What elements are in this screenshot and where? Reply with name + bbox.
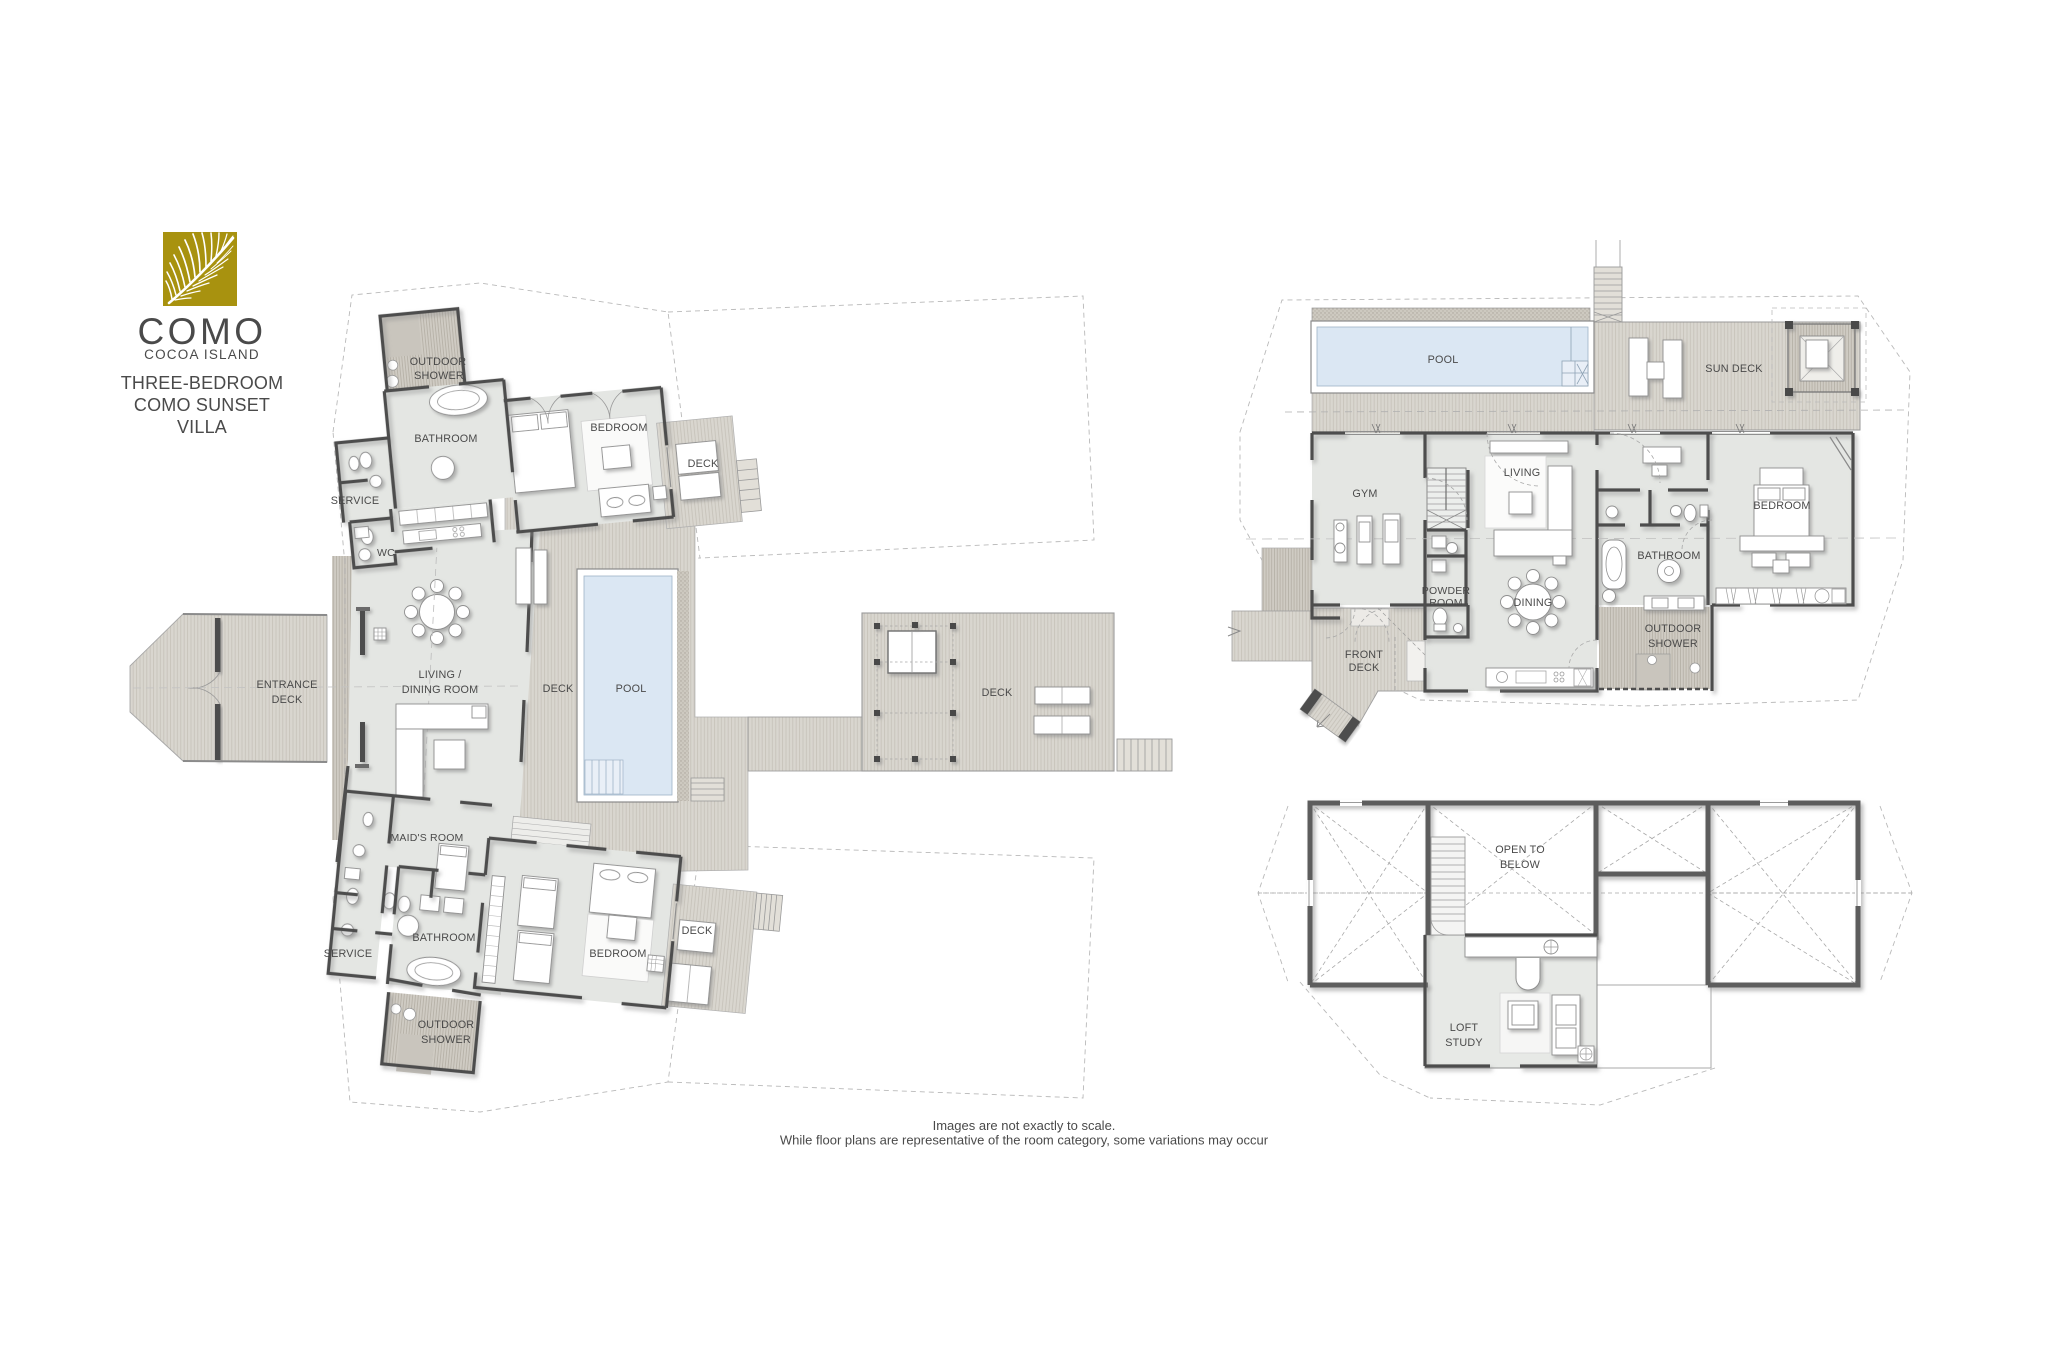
svg-text:DECK: DECK	[982, 687, 1013, 699]
svg-text:MAID'S ROOM: MAID'S ROOM	[390, 832, 463, 844]
svg-text:DINING ROOM: DINING ROOM	[402, 684, 479, 696]
svg-text:DECK: DECK	[272, 694, 303, 706]
svg-text:OUTDOOR: OUTDOOR	[1645, 623, 1702, 635]
svg-text:Images are not exactly to scal: Images are not exactly to scale.	[933, 1118, 1116, 1133]
svg-text:BATHROOM: BATHROOM	[412, 932, 475, 944]
svg-text:BATHROOM: BATHROOM	[1637, 550, 1700, 562]
svg-text:SHOWER: SHOWER	[421, 1034, 471, 1046]
svg-text:ROOM: ROOM	[1429, 597, 1462, 609]
svg-text:SHOWER: SHOWER	[1648, 638, 1698, 650]
svg-text:SERVICE: SERVICE	[331, 495, 380, 507]
svg-text:DINING: DINING	[1514, 597, 1553, 609]
svg-text:ENTRANCE: ENTRANCE	[257, 679, 318, 691]
svg-text:DECK: DECK	[543, 683, 574, 695]
svg-text:COMO SUNSET: COMO SUNSET	[134, 395, 270, 415]
svg-text:DECK: DECK	[682, 925, 713, 937]
svg-text:POOL: POOL	[1428, 354, 1459, 366]
svg-text:LOFT: LOFT	[1450, 1022, 1479, 1034]
svg-text:FRONT: FRONT	[1345, 649, 1383, 661]
svg-text:COMO: COMO	[137, 311, 266, 352]
svg-text:BEDROOM: BEDROOM	[1753, 500, 1810, 512]
svg-text:DECK: DECK	[1349, 662, 1380, 674]
svg-text:OUTDOOR: OUTDOOR	[418, 1019, 475, 1031]
svg-text:COCOA ISLAND: COCOA ISLAND	[144, 347, 260, 362]
svg-text:SERVICE: SERVICE	[324, 948, 373, 960]
svg-text:THREE-BEDROOM: THREE-BEDROOM	[121, 373, 284, 393]
svg-text:LIVING: LIVING	[1504, 467, 1541, 479]
svg-text:POOL: POOL	[616, 683, 647, 695]
svg-text:VILLA: VILLA	[177, 417, 227, 437]
svg-text:OUTDOOR: OUTDOOR	[410, 356, 467, 368]
svg-text:BEDROOM: BEDROOM	[589, 948, 646, 960]
svg-text:SUN DECK: SUN DECK	[1705, 363, 1763, 375]
svg-text:While floor plans are represen: While floor plans are representative of …	[780, 1133, 1269, 1148]
svg-text:POWDER: POWDER	[1422, 585, 1471, 597]
svg-text:BEDROOM: BEDROOM	[590, 422, 647, 434]
svg-text:BELOW: BELOW	[1500, 859, 1541, 871]
svg-text:WC: WC	[377, 547, 395, 559]
svg-text:LIVING /: LIVING /	[418, 669, 461, 681]
svg-text:DECK: DECK	[688, 458, 719, 470]
svg-text:STUDY: STUDY	[1445, 1037, 1483, 1049]
svg-text:BATHROOM: BATHROOM	[414, 433, 477, 445]
svg-text:OPEN TO: OPEN TO	[1495, 844, 1545, 856]
svg-text:SHOWER: SHOWER	[414, 370, 464, 382]
svg-text:GYM: GYM	[1352, 488, 1377, 500]
